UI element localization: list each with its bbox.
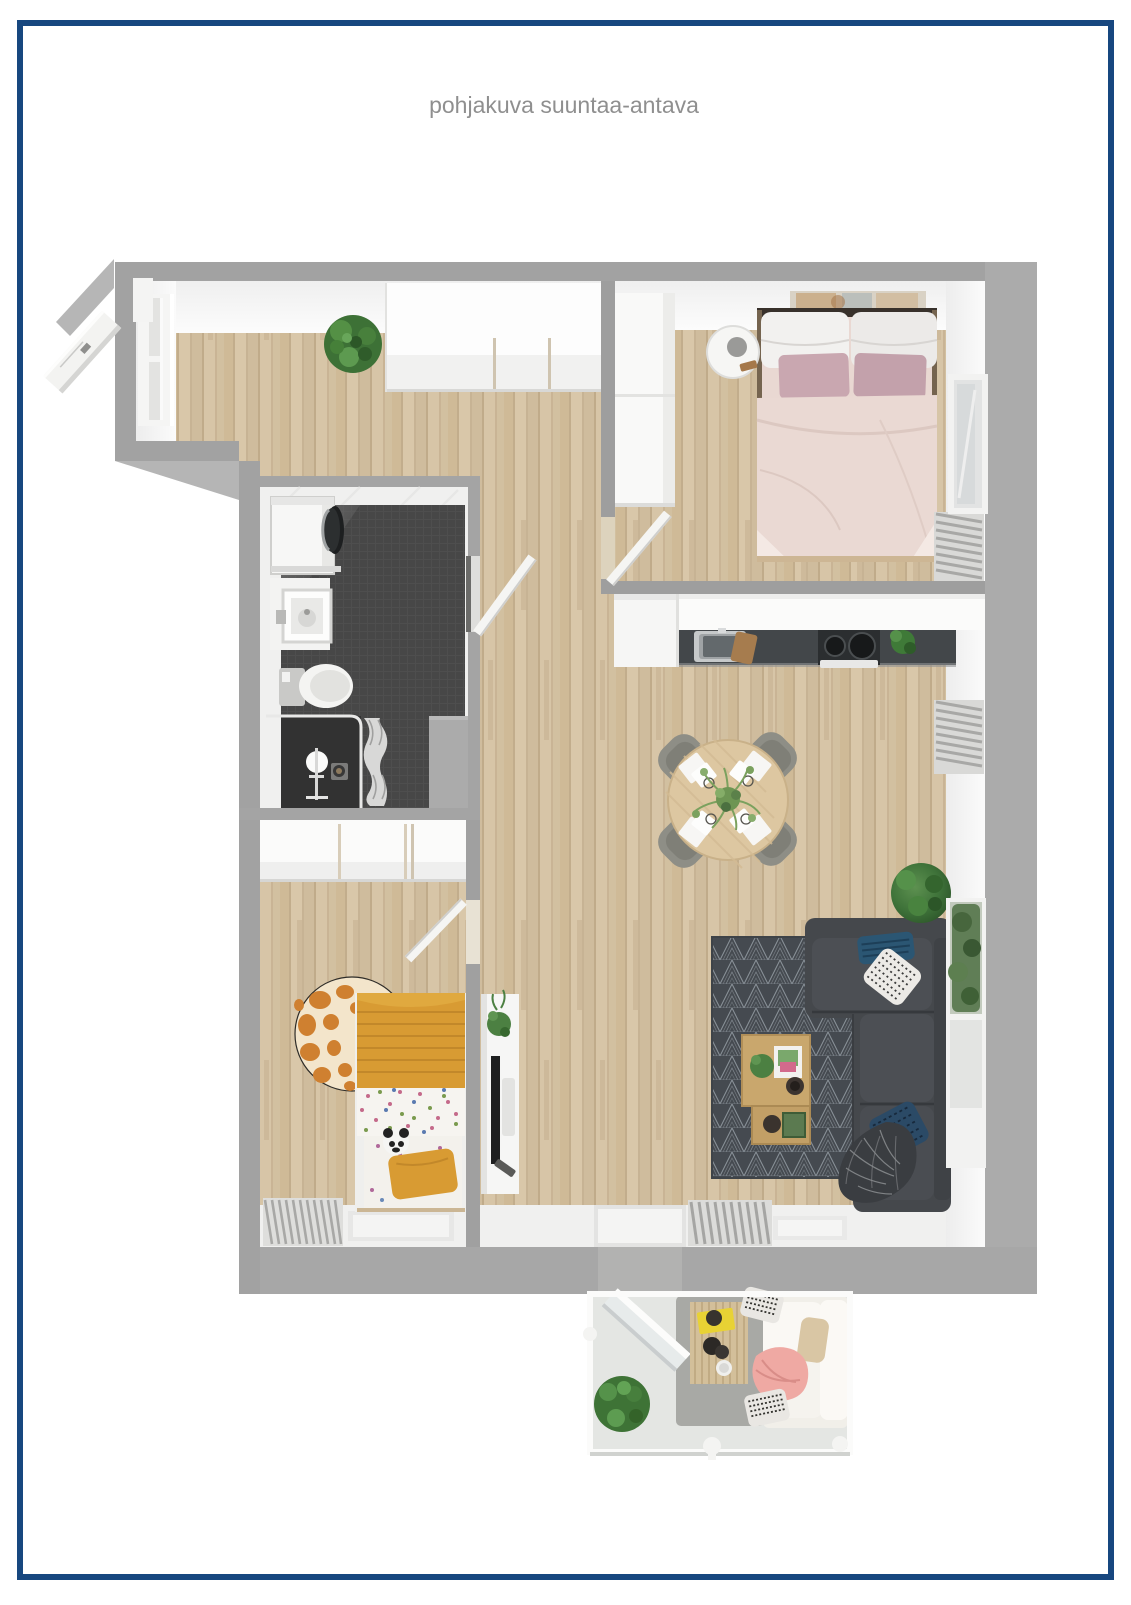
svg-text:pohjakuva suuntaa-antava: pohjakuva suuntaa-antava [429,92,699,118]
